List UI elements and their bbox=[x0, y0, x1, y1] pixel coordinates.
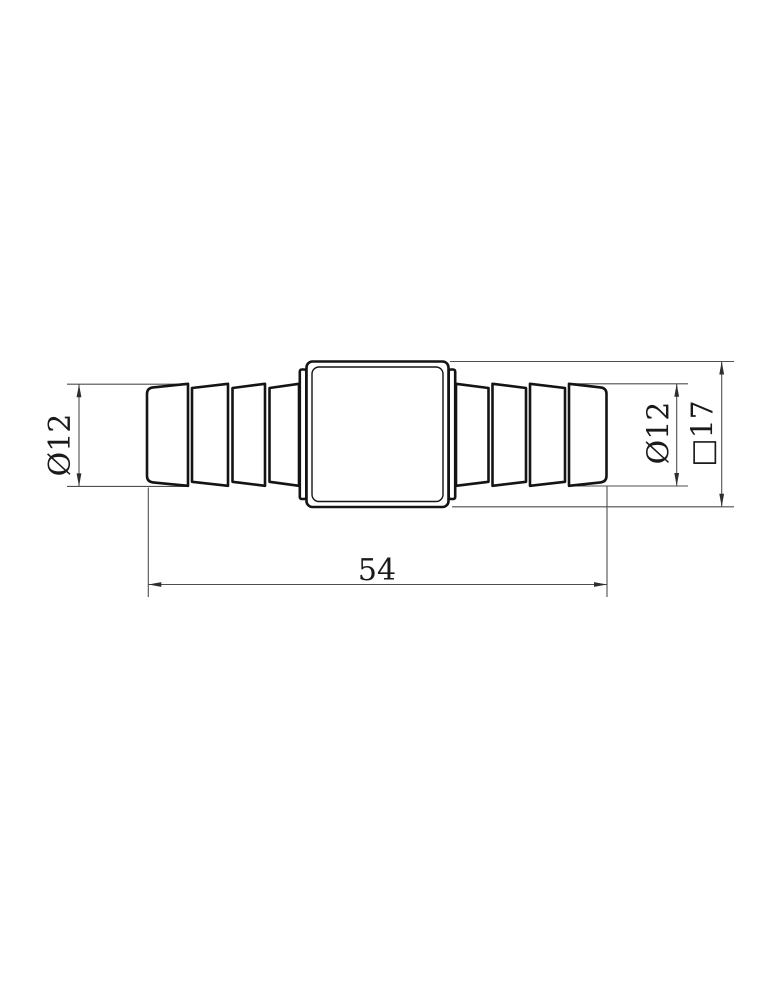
arrow-down-icon bbox=[719, 494, 724, 507]
barb-segment bbox=[147, 384, 188, 486]
barb-segment bbox=[233, 384, 266, 486]
arrow-right-icon bbox=[594, 582, 607, 587]
technical-drawing: Ø12 Ø12 □17 54 bbox=[0, 0, 771, 1000]
arrow-down-icon bbox=[674, 473, 679, 486]
barb-segment bbox=[569, 384, 607, 486]
arrow-up-icon bbox=[719, 362, 724, 375]
barb-segment bbox=[192, 384, 228, 486]
arrow-up-icon bbox=[674, 384, 679, 397]
arrow-left-icon bbox=[148, 582, 161, 587]
barb-segment bbox=[493, 384, 527, 486]
barb-segment bbox=[456, 384, 489, 486]
square-body bbox=[307, 362, 449, 508]
right-barb bbox=[456, 384, 607, 486]
label-square-width: □17 bbox=[686, 400, 721, 467]
barb-segment bbox=[530, 384, 565, 486]
barb-segment bbox=[270, 384, 300, 486]
drawing-page: Ø12 Ø12 □17 54 bbox=[0, 0, 771, 1000]
label-right-diameter: Ø12 bbox=[642, 402, 677, 465]
label-overall-length: 54 bbox=[358, 553, 396, 588]
left-barb bbox=[147, 384, 299, 486]
label-left-diameter: Ø12 bbox=[43, 414, 78, 477]
hose-barb-connector bbox=[147, 362, 607, 508]
arrow-up-icon bbox=[77, 384, 82, 397]
